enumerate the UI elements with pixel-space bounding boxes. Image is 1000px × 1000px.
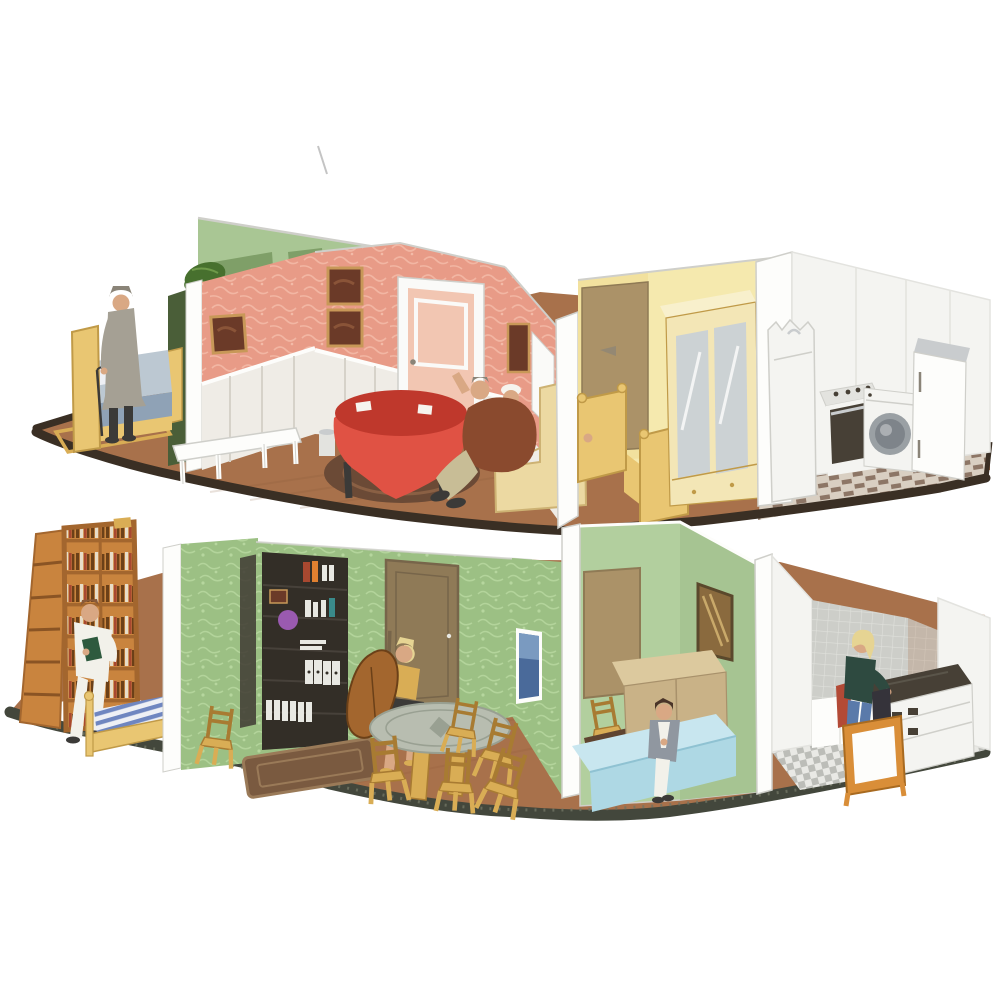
partition-wall-edge [755,554,772,794]
bronze-window [698,584,732,660]
red-table-top [335,390,467,436]
framed-picture [211,315,246,353]
small-picture [270,590,287,603]
partition-wall-edge [562,524,580,798]
playing-card [418,404,433,414]
wall-card-edge [163,544,181,772]
head [396,646,413,663]
dark-bookcase-print [262,552,348,750]
partition-wall-edge [556,312,578,528]
dollhouse-diorama [0,0,1000,1000]
gray-wastebasket [319,429,335,456]
purple-ball [278,610,298,630]
refrigerator [912,338,970,480]
mirrored-wardrobe [660,290,760,506]
doorway-shadow [240,554,258,728]
hands [661,739,668,746]
head [113,295,130,312]
door-handle [447,634,451,638]
mirror-door [676,330,710,478]
lower-bedroom [572,522,757,812]
head [81,604,99,622]
yellow-box-on-shelf [114,517,132,529]
sink-cabinet [768,320,816,502]
head [656,704,672,720]
framed-picture [508,324,529,372]
mirror-door [714,322,748,474]
sleeping-figure-hand [584,434,593,443]
brown-jacket [462,397,536,472]
hand [101,368,108,375]
hand [83,649,90,656]
photo-canvas [0,0,1000,1000]
washing-machine [864,388,916,472]
door-handle [410,359,416,365]
headboard [72,326,100,452]
